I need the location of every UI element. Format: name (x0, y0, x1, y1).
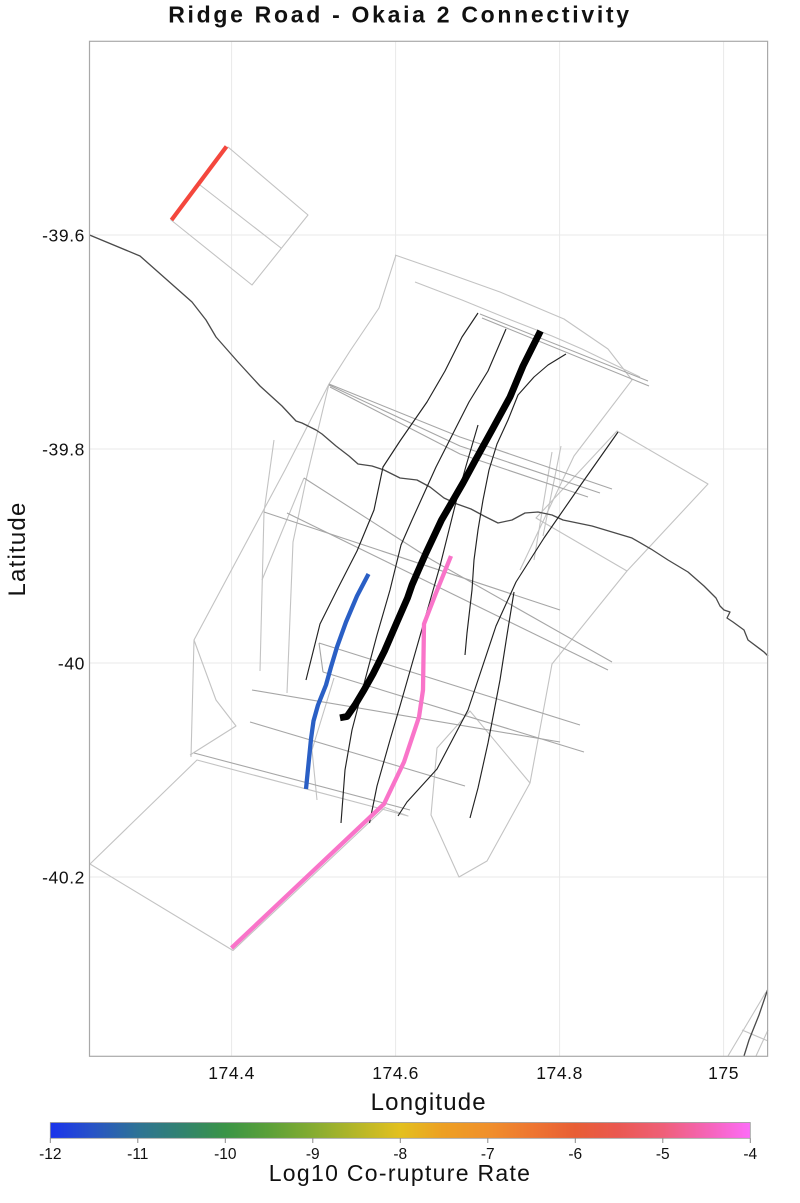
svg-text:-39.8: -39.8 (42, 439, 85, 459)
svg-text:-39.6: -39.6 (42, 225, 85, 245)
svg-text:-40.2: -40.2 (42, 867, 85, 887)
svg-text:Log10 Co-rupture Rate: Log10 Co-rupture Rate (269, 1160, 532, 1186)
svg-text:-10: -10 (214, 1146, 237, 1163)
svg-text:Longitude: Longitude (371, 1089, 487, 1116)
svg-text:174.6: 174.6 (372, 1063, 419, 1083)
svg-text:-12: -12 (39, 1146, 61, 1163)
svg-text:174.8: 174.8 (536, 1063, 583, 1083)
svg-text:Ridge Road - Okaia 2 Connectiv: Ridge Road - Okaia 2 Connectivity (168, 2, 632, 28)
svg-text:-5: -5 (656, 1146, 670, 1163)
svg-text:-40: -40 (58, 653, 85, 673)
svg-text:174.4: 174.4 (208, 1063, 255, 1083)
svg-text:-11: -11 (127, 1146, 148, 1163)
svg-text:Latitude: Latitude (4, 501, 31, 596)
svg-text:175: 175 (708, 1063, 739, 1083)
svg-text:-4: -4 (743, 1146, 757, 1163)
svg-text:-6: -6 (568, 1146, 582, 1163)
